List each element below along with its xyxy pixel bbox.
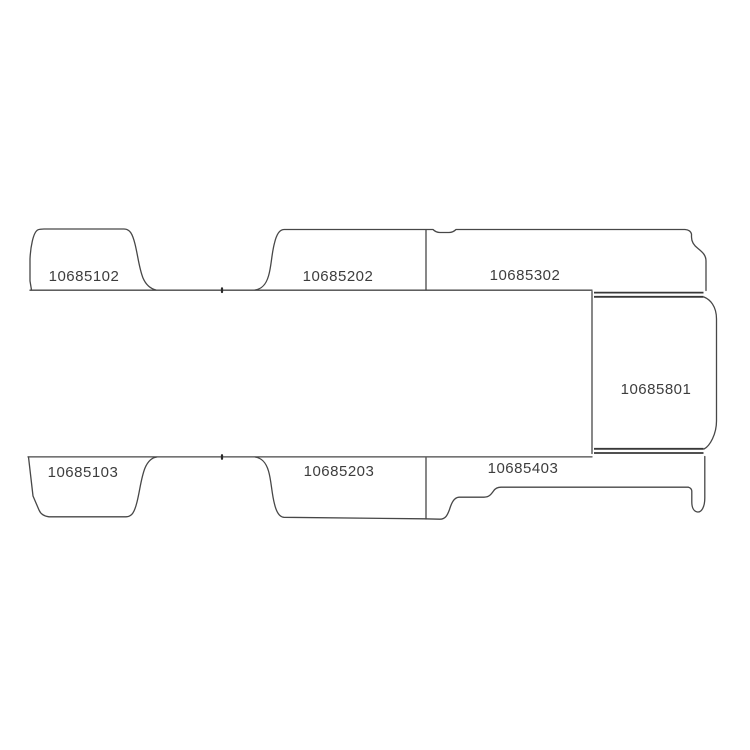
part-label-side-panel: 10685801: [621, 381, 692, 398]
diagram-page: 10685102 10685202 10685302 10685801 1068…: [0, 0, 750, 750]
part-label-bottom-left: 10685103: [48, 464, 119, 481]
part-label-top-right: 10685302: [490, 267, 561, 284]
part-label-top-middle: 10685202: [303, 268, 374, 285]
part-label-bottom-right: 10685403: [488, 460, 559, 477]
side-panel-right-edge: [704, 297, 717, 449]
part-label-top-left: 10685102: [49, 268, 120, 285]
part-label-bottom-middle: 10685203: [304, 463, 375, 480]
parts-diagram-canvas: 10685102 10685202 10685302 10685801 1068…: [0, 0, 750, 750]
